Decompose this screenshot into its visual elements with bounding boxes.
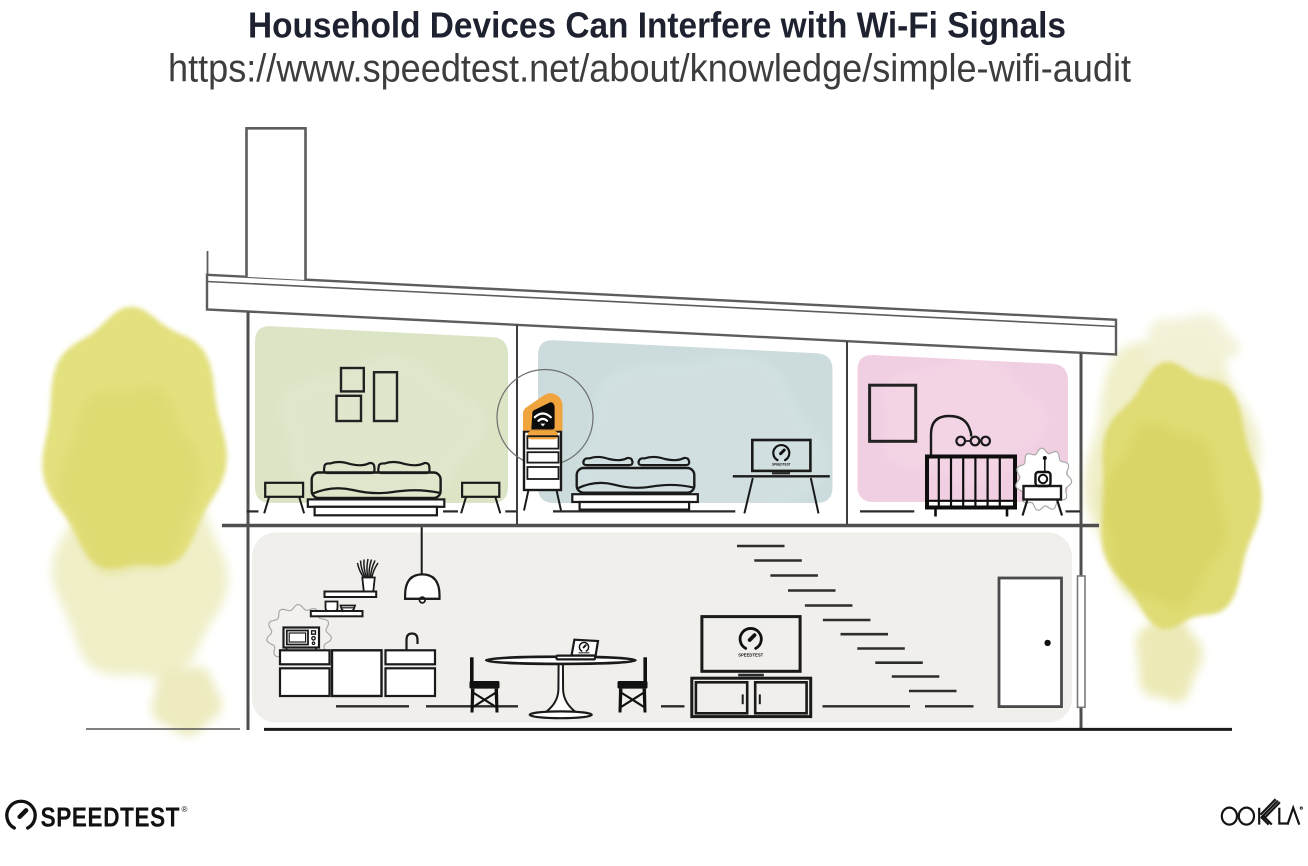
svg-text:https://www.speedtest.net/abou: https://www.speedtest.net/about/knowledg… bbox=[168, 48, 1131, 91]
svg-text:SPEEDTEST: SPEEDTEST bbox=[41, 801, 181, 832]
svg-text:SPEEDTEST: SPEEDTEST bbox=[738, 652, 763, 657]
svg-text:SPEEDTEST: SPEEDTEST bbox=[772, 463, 791, 467]
svg-text:Household Devices Can Interfer: Household Devices Can Interfere with Wi-… bbox=[248, 5, 1066, 46]
svg-text:®: ® bbox=[182, 805, 188, 814]
